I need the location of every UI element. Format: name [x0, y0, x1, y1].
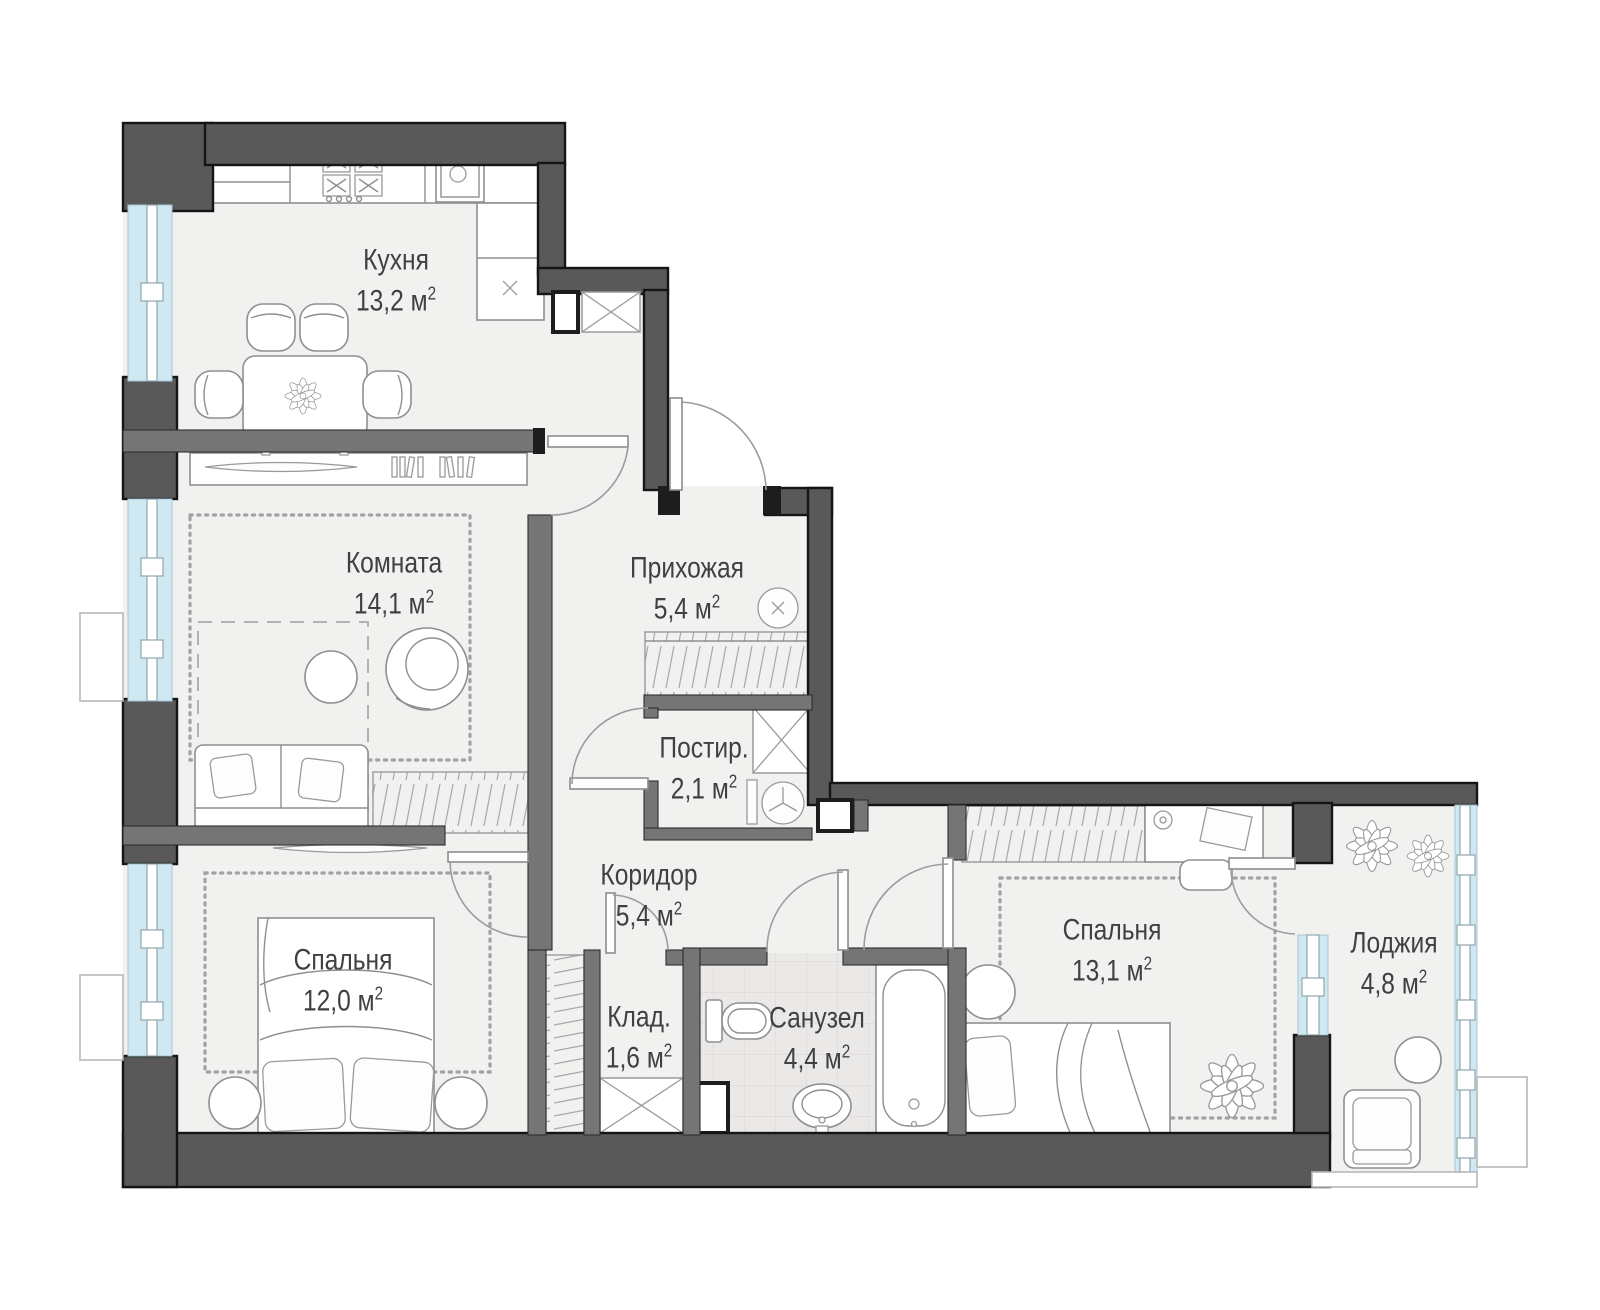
loggia-armchair — [1344, 1090, 1420, 1168]
ac-basket-2 — [80, 975, 123, 1060]
floor-plan-drawing — [0, 0, 1600, 1310]
sprinkler-icon — [758, 588, 798, 628]
room-label-room: Комната 14,1 м2 — [346, 543, 442, 626]
loggia-slab — [1312, 1172, 1477, 1187]
stool — [961, 965, 1015, 1019]
storage-shaft — [600, 1078, 683, 1133]
room-label-storage: Клад. 1,6 м2 — [606, 997, 672, 1080]
room-label-bedroom-1: Спальня 12,0 м2 — [294, 940, 393, 1023]
wardrobe-bedroom-2 — [962, 806, 1145, 862]
single-bed — [960, 1023, 1170, 1137]
window-bedroom-2-loggia — [1298, 935, 1328, 1035]
room-label-loggia: Лоджия 4,8 м2 — [1350, 923, 1437, 1006]
closet-rail — [546, 955, 584, 1133]
laundry-shaft — [753, 707, 810, 773]
room-label-hallway: Прихожая 5,4 м2 — [630, 548, 744, 631]
room-label-kitchen: Кухня 13,2 м2 — [356, 240, 436, 323]
plant-bedroom-2 — [1201, 1055, 1264, 1118]
window-kitchen — [128, 205, 172, 381]
window-livingroom — [128, 499, 172, 701]
room-label-bathroom: Санузел 4,4 м2 — [769, 998, 865, 1081]
room-label-corridor: Коридор 5,4 м2 — [600, 855, 697, 938]
room-label-laundry: Постир. 2,1 м2 — [659, 728, 748, 811]
washing-machine-icon — [747, 780, 804, 824]
floor-plan: Кухня 13,2 м2 Комната 14,1 м2 Прихожая 5… — [0, 0, 1600, 1310]
toilet-icon — [706, 1000, 772, 1042]
ac-basket-1 — [80, 613, 123, 701]
dining-table — [243, 356, 367, 438]
bathtub-icon — [876, 963, 952, 1133]
hallway-wardrobe — [645, 632, 808, 697]
window-bedroom-1 — [128, 864, 172, 1056]
desk-chair — [1180, 860, 1232, 890]
wardrobe-livingroom — [373, 772, 528, 833]
loggia-glazing — [1455, 805, 1477, 1172]
sofa — [195, 745, 368, 833]
tv-console — [190, 448, 527, 485]
armchair-round — [386, 628, 468, 710]
room-label-bedroom-2: Спальня 13,1 м2 — [1063, 910, 1162, 993]
loggia-table — [1395, 1037, 1441, 1083]
ac-basket-3 — [1477, 1077, 1527, 1167]
pouf — [305, 651, 357, 703]
